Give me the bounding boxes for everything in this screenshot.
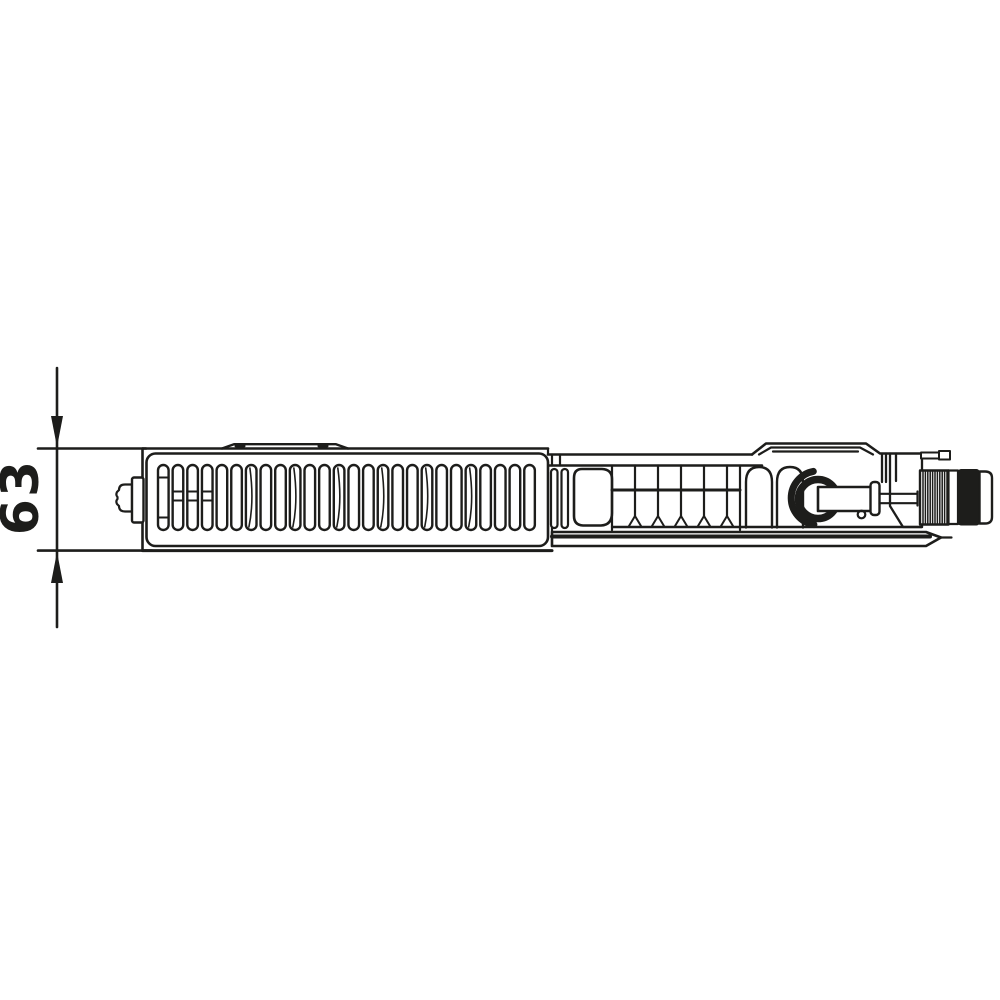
- spindle-flange: [871, 482, 880, 515]
- plug-flange: [132, 478, 144, 523]
- technical-drawing-canvas: 63: [0, 0, 1000, 1000]
- valve-assembly: [791, 451, 992, 527]
- fin-bottom-chamfers: [629, 516, 733, 526]
- water-channel-outline: [574, 469, 612, 526]
- bottom-panel-rail: [552, 532, 941, 546]
- connection-collar: [949, 471, 959, 525]
- valve-insert-nut: [958, 469, 980, 526]
- front-grille-panel: [147, 454, 549, 547]
- air-vent-pipe-cap: [939, 451, 950, 460]
- left-blind-plug: [116, 478, 143, 523]
- valve-body-block: [882, 454, 922, 528]
- dimension-label: 63: [0, 459, 51, 535]
- valve-end-cap: [980, 472, 993, 524]
- rear-top-lines: [548, 455, 762, 466]
- radiator-top-view-drawing: 63: [0, 0, 1000, 1000]
- air-vent-pipe: [921, 453, 939, 459]
- dimension-arrow-up-icon: [51, 552, 63, 583]
- valve-spindle-stem: [880, 492, 918, 506]
- drawing-root: 63: [0, 368, 992, 627]
- fin-grid-verticals: [612, 466, 740, 531]
- plug-cap-profile: [116, 485, 132, 512]
- dimension-arrow-down-icon: [51, 416, 63, 447]
- valve-cover-hump-inner: [759, 448, 873, 455]
- valve-outlet-cylinder: [818, 487, 871, 511]
- end-fin-slot: [562, 469, 569, 528]
- end-fin-slot: [551, 469, 558, 528]
